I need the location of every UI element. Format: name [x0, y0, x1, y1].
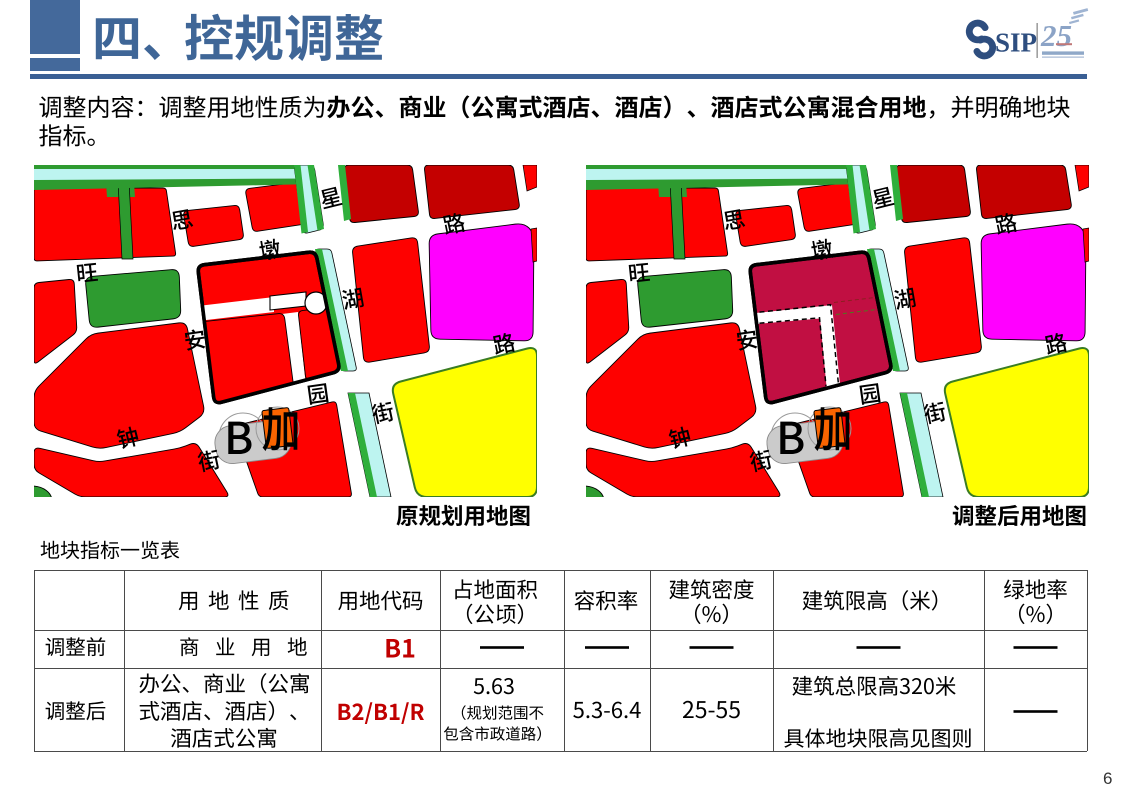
svg-text:6: 6: [1103, 769, 1112, 788]
